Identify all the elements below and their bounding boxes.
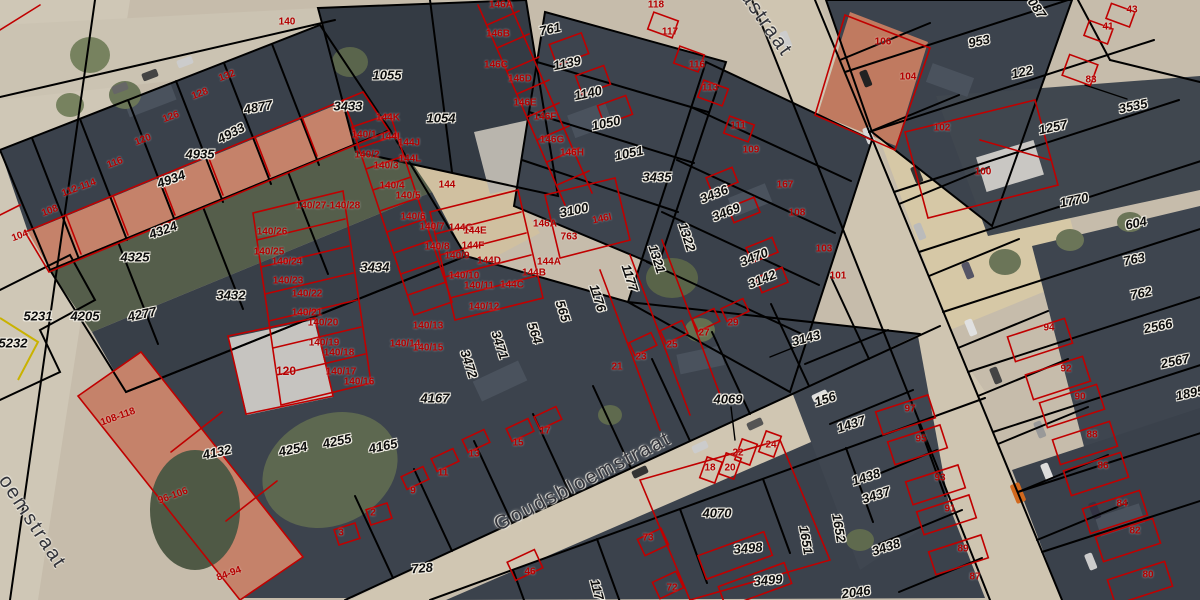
map-canvas[interactable]: 4877493349354934432443253432343310551054… (0, 0, 1200, 600)
aerial-basemap (0, 0, 1200, 600)
